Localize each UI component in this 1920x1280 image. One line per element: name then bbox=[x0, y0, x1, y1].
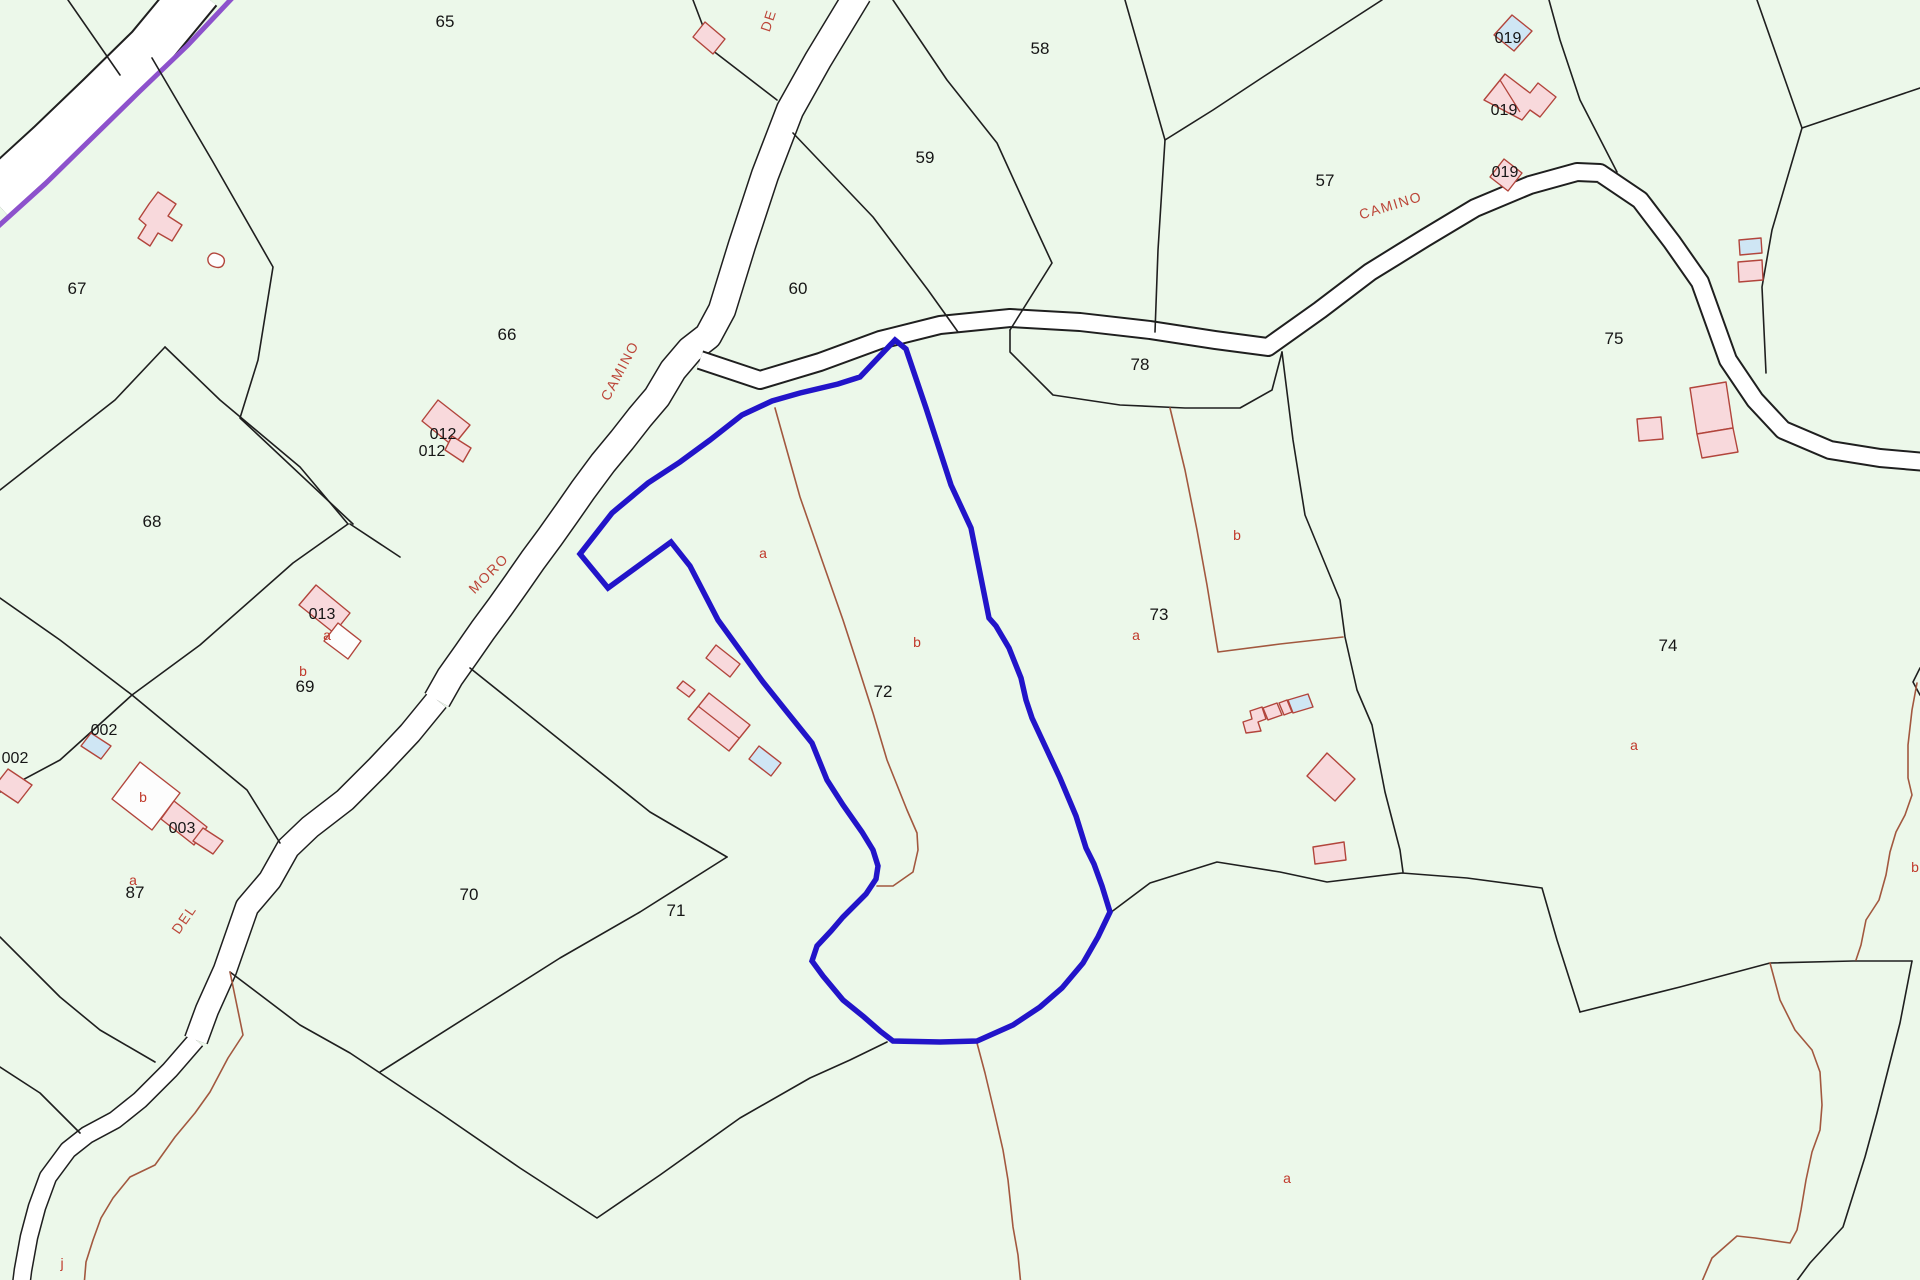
parcel-label-57: 57 bbox=[1316, 171, 1335, 190]
building-label-012: 012 bbox=[430, 426, 457, 443]
parcel-label-78: 78 bbox=[1131, 355, 1150, 374]
subparcel-label-b: b bbox=[1233, 527, 1241, 543]
parcel-label-72: 72 bbox=[874, 682, 893, 701]
building-label-019: 019 bbox=[1492, 164, 1519, 181]
parcel-label-74: 74 bbox=[1659, 636, 1678, 655]
building-label-019: 019 bbox=[1491, 102, 1518, 119]
subparcel-label-a: a bbox=[1132, 627, 1140, 643]
parcel-label-65: 65 bbox=[436, 12, 455, 31]
subparcel-label-j: j bbox=[59, 1255, 63, 1271]
parcel-label-68: 68 bbox=[143, 512, 162, 531]
parcel-label-67: 67 bbox=[68, 279, 87, 298]
cadastral-map-viewport[interactable]: 6558595760666768697071727374757887 01201… bbox=[0, 0, 1920, 1280]
building-label-019: 019 bbox=[1495, 30, 1522, 47]
building-label-013: 013 bbox=[309, 606, 336, 623]
building-75-annex bbox=[1697, 428, 1738, 458]
building-label-012: 012 bbox=[419, 443, 446, 460]
parcel-label-66: 66 bbox=[498, 325, 517, 344]
subparcel-label-b: b bbox=[139, 789, 147, 805]
building-label-003: 003 bbox=[169, 820, 196, 837]
building-label-002: 002 bbox=[91, 722, 118, 739]
cadastral-map: 6558595760666768697071727374757887 01201… bbox=[0, 0, 1920, 1280]
building-label-002: 002 bbox=[2, 750, 29, 767]
subparcel-label-a: a bbox=[323, 627, 331, 643]
building-67-blob bbox=[208, 253, 225, 267]
parcel-label-73: 73 bbox=[1150, 605, 1169, 624]
building-right-blue bbox=[1739, 238, 1762, 255]
parcel-label-71: 71 bbox=[667, 901, 686, 920]
subparcel-label-a: a bbox=[129, 872, 137, 888]
building-75-main bbox=[1690, 382, 1733, 434]
subparcel-label-b: b bbox=[913, 634, 921, 650]
parcel-label-58: 58 bbox=[1031, 39, 1050, 58]
subparcel-label-b: b bbox=[299, 663, 307, 679]
parcel-label-69: 69 bbox=[296, 677, 315, 696]
subparcel-label-a: a bbox=[759, 545, 767, 561]
parcel-label-59: 59 bbox=[916, 148, 935, 167]
building-right-pink bbox=[1738, 260, 1763, 282]
subparcel-label-a: a bbox=[1283, 1170, 1291, 1186]
parcel-label-70: 70 bbox=[460, 885, 479, 904]
building-75-shed bbox=[1637, 417, 1663, 441]
subparcel-label-b: b bbox=[1911, 859, 1919, 875]
parcel-label-75: 75 bbox=[1605, 329, 1624, 348]
subparcel-label-a: a bbox=[1630, 737, 1638, 753]
parcel-label-60: 60 bbox=[789, 279, 808, 298]
